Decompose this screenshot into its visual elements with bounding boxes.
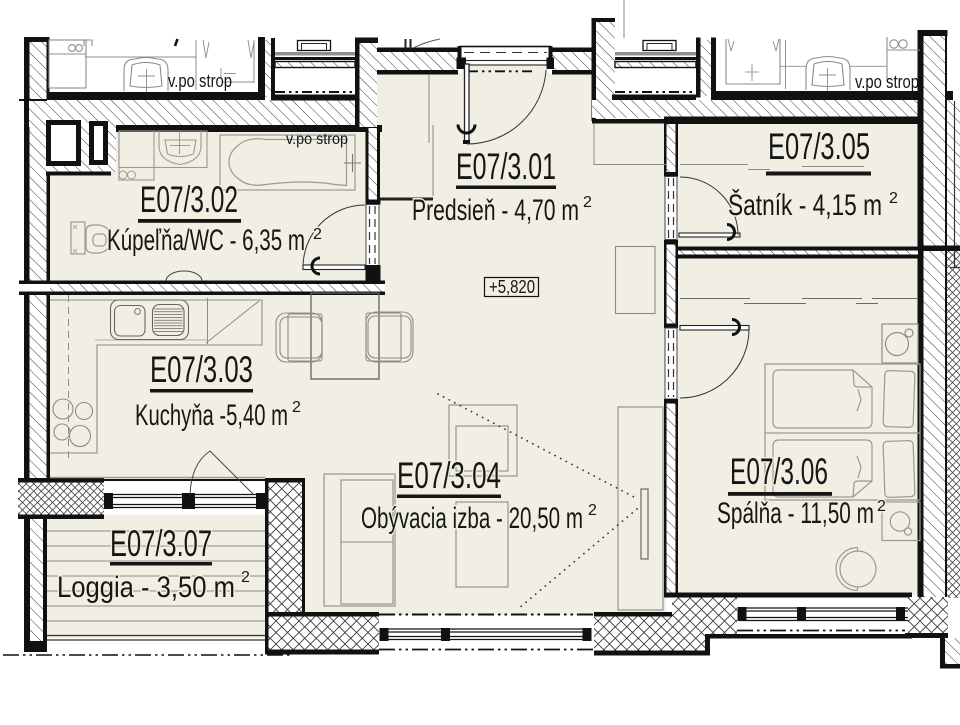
- svg-text:E07/3.01: E07/3.01: [456, 146, 556, 187]
- svg-text:2: 2: [877, 498, 886, 515]
- svg-text:v.po strop: v.po strop: [168, 71, 232, 91]
- svg-text:2: 2: [889, 190, 898, 207]
- svg-text:+5,820: +5,820: [489, 277, 535, 297]
- svg-text:Predsieň - 4,70 m: Predsieň - 4,70 m: [412, 194, 579, 227]
- svg-text:2: 2: [241, 569, 250, 586]
- svg-text:2: 2: [588, 502, 597, 519]
- svg-text:v.po strop: v.po strop: [286, 131, 348, 148]
- svg-text:Kúpeľňa/WC - 6,35 m: Kúpeľňa/WC - 6,35 m: [107, 224, 305, 257]
- svg-text:E07/3.07: E07/3.07: [110, 523, 212, 564]
- svg-text:Obývacia izba - 20,50 m: Obývacia izba - 20,50 m: [361, 502, 583, 535]
- svg-text:v.po strop: v.po strop: [855, 72, 919, 92]
- svg-text:E07/3.05: E07/3.05: [768, 126, 870, 167]
- svg-text:2: 2: [292, 399, 301, 416]
- svg-text:E07/3.04: E07/3.04: [397, 455, 501, 496]
- svg-text:Kuchyňa -5,40 m: Kuchyňa -5,40 m: [135, 399, 288, 432]
- svg-text:E07/3.03: E07/3.03: [150, 349, 253, 390]
- svg-text:E07/3.06: E07/3.06: [730, 451, 828, 492]
- svg-text:E07/3.02: E07/3.02: [140, 179, 238, 220]
- svg-text:2: 2: [313, 226, 322, 243]
- svg-text:Spálňa - 11,50 m: Spálňa - 11,50 m: [717, 497, 874, 530]
- svg-text:Loggia - 3,50 m: Loggia - 3,50 m: [57, 571, 235, 604]
- svg-text:2: 2: [583, 194, 592, 211]
- svg-text:Šatník - 4,15 m: Šatník - 4,15 m: [728, 188, 882, 222]
